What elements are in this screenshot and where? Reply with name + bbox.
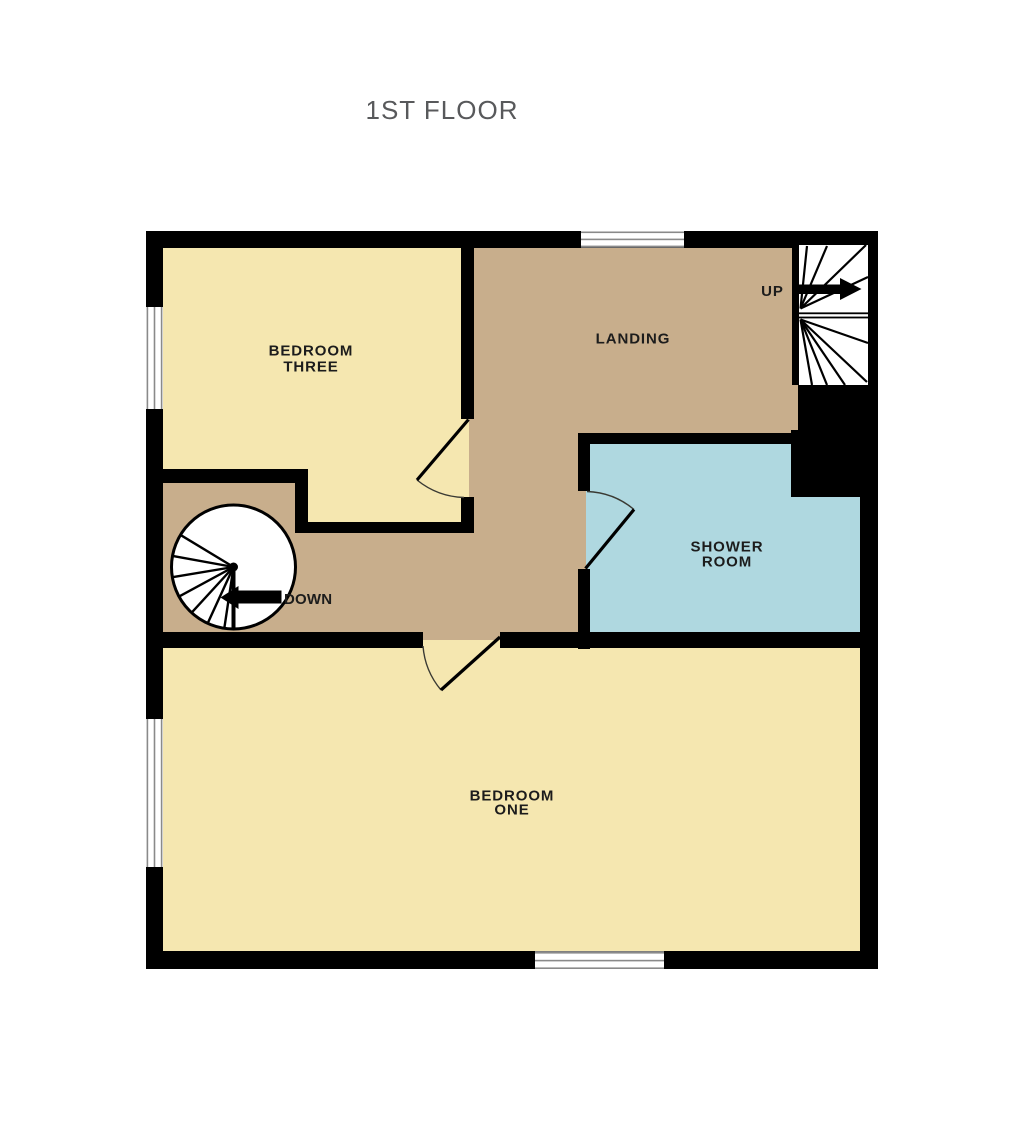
svg-text:BEDROOM: BEDROOM [269, 342, 354, 359]
svg-text:THREE: THREE [283, 358, 338, 375]
svg-text:DOWN: DOWN [284, 591, 332, 608]
svg-text:ONE: ONE [494, 802, 529, 819]
svg-text:LANDING: LANDING [596, 331, 671, 348]
svg-text:ROOM: ROOM [702, 553, 752, 570]
svg-text:UP: UP [761, 283, 784, 300]
svg-text:1ST FLOOR: 1ST FLOOR [365, 95, 518, 125]
